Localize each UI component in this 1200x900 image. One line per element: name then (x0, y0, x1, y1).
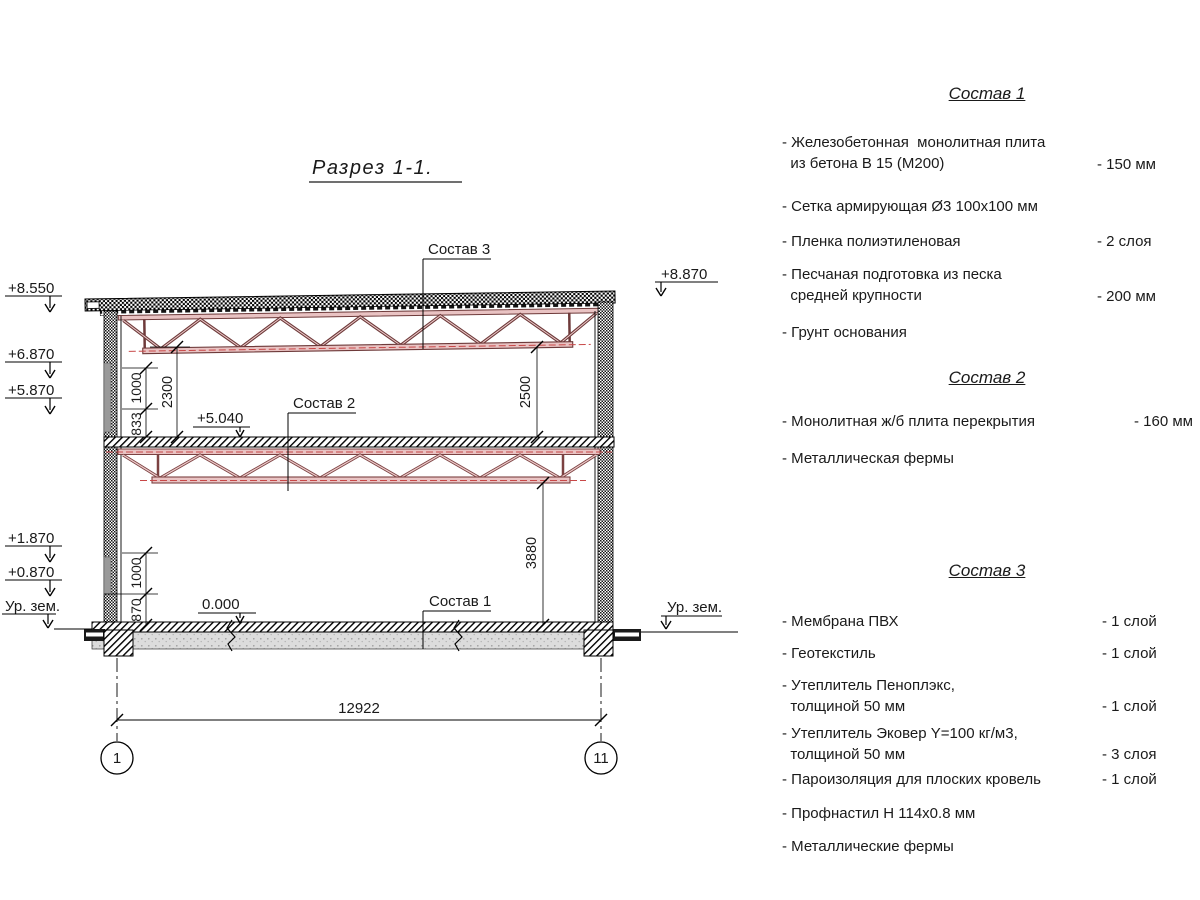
foundation-left (84, 629, 133, 656)
callout-sostav1-text: Состав 1 (429, 593, 491, 610)
dimension-2500: 2500 (518, 341, 543, 443)
dimension-2500-text: 2500 (518, 376, 534, 408)
elevation-mark-6870: +6.870 (5, 346, 62, 378)
legend-item: - Сетка армирующая Ø3 100x100 мм (782, 196, 1038, 217)
legend-item: - Монолитная ж/б плита перекрытия (782, 411, 1035, 432)
legend-item-value: - 1 слой (1102, 643, 1157, 664)
callout-level-0000-text: 0.000 (202, 596, 240, 613)
legend-item: - Геотекстиль (782, 643, 876, 664)
legend-item: - Утеплитель Эковер Y=100 кг/м3, толщино… (782, 723, 1018, 765)
foundation-right-ledge-core (615, 633, 639, 637)
elevation-mark-ground-left: Ур. зем. (2, 598, 60, 628)
legend-item: - Пароизоляция для плоских кровель (782, 769, 1041, 790)
dimension-upper-833: 833 (128, 412, 144, 436)
roof-edge-notch (87, 302, 99, 309)
elevation-6870-text: +6.870 (8, 346, 54, 363)
legend-item: - Профнастил Н 114x0.8 мм (782, 803, 975, 824)
callout-level-5040-text: +5.040 (197, 410, 243, 427)
legend-section1-header: Состав 1 (772, 84, 1200, 104)
legend-item-value: - 1 слой (1102, 611, 1157, 632)
legend-item: - Железобетонная монолитная плита из бет… (782, 132, 1045, 174)
materials-legend: Состав 1 - Железобетонная монолитная пли… (772, 0, 1200, 900)
foundation-left-block (104, 630, 133, 656)
elevation-mark-ground-right: Ур. зем. (661, 599, 722, 629)
elevation-0870-text: +0.870 (8, 564, 54, 581)
left-wall-glazing-lower (104, 557, 111, 594)
roof-truss-bottom-chord (143, 342, 573, 354)
legend-item-value: - 1 слой (1102, 769, 1157, 790)
elevation-mark-8870: +8.870 (655, 266, 718, 296)
dimension-3880: 3880 (524, 477, 549, 631)
foundation-right-block (584, 630, 613, 656)
elevation-5870-text: +5.870 (8, 382, 54, 399)
floor-concrete-layer (92, 622, 613, 632)
legend-item: - Грунт основания (782, 322, 907, 343)
right-wall (595, 302, 613, 630)
legend-item: - Металлические фермы (782, 836, 954, 857)
legend-item-value: - 1 слой (1102, 696, 1157, 717)
elevation-ground-right-text: Ур. зем. (667, 599, 722, 616)
elevation-mark-8550: +8.550 (5, 280, 62, 312)
legend-item: - Пленка полиэтиленовая (782, 231, 961, 252)
legend-item: - Металлическая фермы (782, 448, 954, 469)
dimension-span-text: 12922 (338, 700, 380, 717)
dimension-2300: 2300 (150, 341, 190, 443)
roof-assembly (85, 291, 616, 354)
elevation-1870-text: +1.870 (8, 530, 54, 547)
floor-sand-layer (92, 632, 585, 649)
legend-item-value: - 3 слоя (1102, 744, 1157, 765)
dimension-span: 12922 (111, 700, 607, 726)
dimension-upper-chain: 1000 833 (122, 362, 158, 443)
dimension-upper-1000: 1000 (128, 372, 144, 403)
elevation-ground-left-text: Ур. зем. (5, 598, 60, 615)
callout-sostav3-text: Состав 3 (428, 241, 490, 258)
callout-level-5040: +5.040 (193, 410, 250, 437)
section-drawing: Разрез 1-1. (0, 0, 772, 900)
legend-item: - Песчаная подготовка из песка средней к… (782, 264, 1002, 306)
middle-truss (106, 449, 612, 483)
legend-item-value: - 150 мм (1097, 154, 1156, 175)
legend-item-value: - 2 слоя (1097, 231, 1152, 252)
foundation-left-ledge-core (86, 633, 103, 637)
axis-1-label: 1 (113, 750, 121, 767)
view-title: Разрез 1-1. (309, 157, 462, 182)
elevation-8550-text: +8.550 (8, 280, 54, 297)
view-title-text: Разрез 1-1. (312, 157, 433, 179)
middle-slab (104, 437, 614, 447)
drawing-sheet: Разрез 1-1. (0, 0, 1200, 900)
left-wall (104, 311, 121, 630)
right-wall-body (598, 302, 613, 630)
foundation-right (584, 629, 641, 656)
dimension-lower-1000: 1000 (128, 557, 144, 588)
axis-11-label: 11 (593, 750, 609, 767)
axis-1: 1 (101, 658, 133, 774)
elevation-8870-text: +8.870 (661, 266, 707, 283)
legend-section2-header: Состав 2 (772, 368, 1200, 388)
axis-11: 11 (585, 658, 617, 774)
elevation-mark-1870: +1.870 (5, 530, 62, 562)
floor-slab (92, 620, 613, 651)
callout-sostav2-text: Состав 2 (293, 395, 355, 412)
dimension-3880-text: 3880 (524, 537, 540, 569)
dimension-2300-text: 2300 (160, 376, 176, 408)
dimension-lower-870: 870 (128, 598, 144, 622)
callout-level-0000: 0.000 (198, 596, 256, 623)
elevation-mark-5870: +5.870 (5, 382, 62, 414)
legend-item: - Утеплитель Пеноплэкс, толщиной 50 мм (782, 675, 955, 717)
legend-section3-header: Состав 3 (772, 561, 1200, 581)
elevation-mark-0870: +0.870 (5, 564, 62, 596)
middle-truss-diagonals-core (123, 455, 596, 478)
roof-truss (118, 308, 601, 354)
legend-item-value: - 200 мм (1097, 286, 1156, 307)
left-wall-glazing-upper (104, 363, 111, 432)
legend-item-value: - 160 мм (1134, 411, 1193, 432)
legend-item: - Мембрана ПВХ (782, 611, 899, 632)
